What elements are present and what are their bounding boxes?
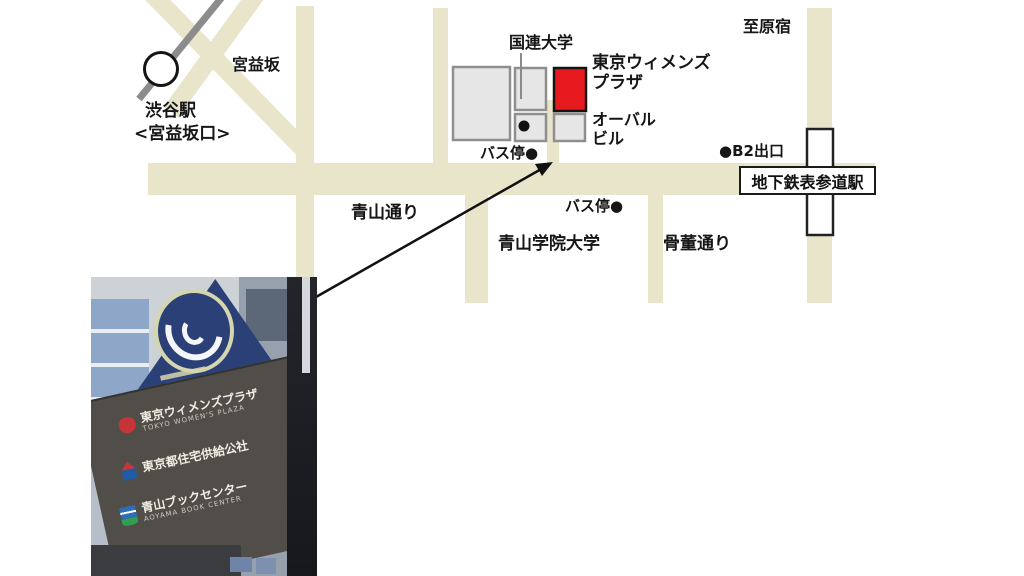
photo-light-sliver (302, 277, 310, 373)
road-kotto-dori (648, 195, 663, 303)
label-tokyo-womens-plaza: 東京ウィメンズプラザ (592, 53, 711, 93)
label-aoyama-dori: 青山通り (351, 203, 419, 223)
label-aoyama-gakuin-univ: 青山学院大学 (498, 234, 600, 254)
access-map-page: 宮益坂 渋谷駅 <宮益坂口> 国連大学 東京ウィメンズプラザ オーバルビル バス… (0, 0, 1024, 576)
building-block-large (453, 67, 510, 140)
road-vertical-un-west (433, 8, 448, 164)
road-vertical-left (296, 6, 314, 277)
photo-window (230, 557, 252, 572)
label-b2-exit: ●B2出口 (719, 143, 784, 161)
label-miyamasuzaka-exit: <宮益坂口> (134, 124, 231, 144)
label-bus-stop-upper: バス停● (480, 145, 538, 163)
building-un-university (515, 68, 546, 110)
housing-corp-logo-icon (120, 460, 139, 482)
label-oval-building-line2: ビル (592, 130, 656, 149)
building-oval (554, 114, 585, 141)
label-kotto-dori: 骨董通り (663, 234, 731, 254)
building-sign-photo: ← 東京ウィメンズプラザ TOKYO WOMEN'S PLAZA 東京都住宅供給… (91, 277, 317, 576)
entrance-dot-icon (519, 121, 530, 132)
label-shibuya-station: 渋谷駅 (145, 101, 196, 121)
shibuya-station-circle-icon (145, 53, 178, 86)
logo-base (122, 468, 138, 481)
womens-plaza-spiral-logo-icon (154, 289, 234, 373)
label-tokyo-womens-plaza-line1: 東京ウィメンズ (592, 53, 711, 73)
label-miyamasuzaka: 宮益坂 (232, 56, 280, 75)
book-center-logo-icon (119, 505, 139, 527)
road-to-harajuku-upper (807, 8, 832, 130)
building-tokyo-womens-plaza (554, 68, 586, 111)
womens-plaza-logo-icon (117, 416, 137, 435)
photo-lower-facade (91, 545, 241, 576)
label-un-university: 国連大学 (509, 34, 573, 53)
label-oval-building: オーバルビル (592, 111, 656, 149)
label-tokyo-womens-plaza-line2: プラザ (592, 73, 711, 93)
label-subway-omotesando-station: 地下鉄表参道駅 (739, 166, 876, 195)
label-to-harajuku: 至原宿 (743, 18, 791, 37)
photo-window (256, 558, 276, 574)
road-to-harajuku-lower (807, 233, 832, 303)
label-oval-building-line1: オーバル (592, 111, 656, 130)
label-bus-stop-lower: バス停● (565, 198, 623, 216)
